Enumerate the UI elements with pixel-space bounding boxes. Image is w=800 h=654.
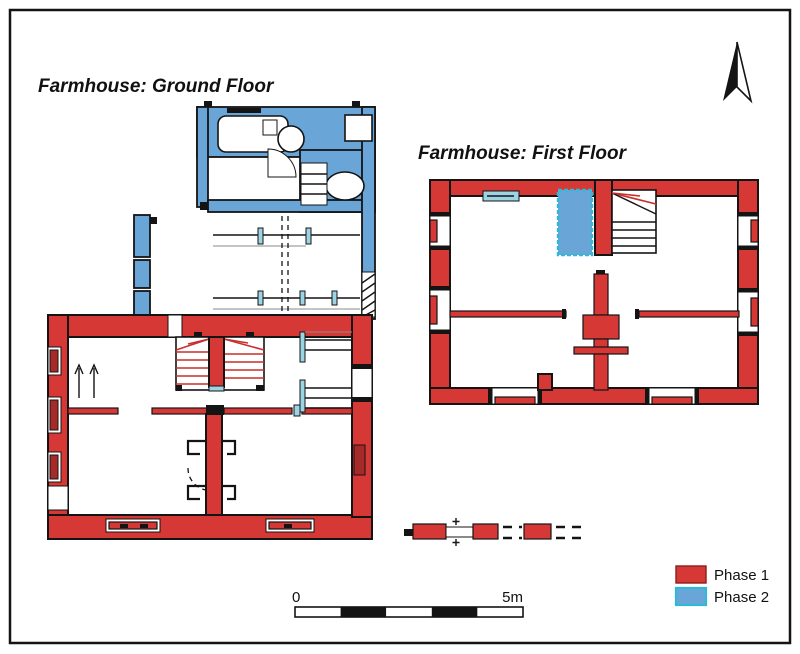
cistern [263,120,277,135]
scale-bar-segment [386,607,432,617]
wash-basin [278,126,304,152]
scale-bar-segment [477,607,523,617]
scale-bar-segments [295,607,523,617]
legend-label-phase2: Phase 2 [714,589,769,606]
scale-bar-segment [295,607,341,617]
ground-floor-stairs [176,337,264,391]
legend-label-phase1: Phase 1 [714,567,769,584]
legend-swatch-phase2 [676,588,706,605]
scale-end-label: 5m [502,589,523,606]
first-floor-stairs [612,190,656,253]
scale-start-label: 0 [292,589,300,606]
phase2-window-fitting [483,191,519,201]
hatched-wall-section [362,272,375,317]
figure-page: Farmhouse: Ground Floor Farmhouse: First… [0,0,800,654]
legend-swatch-phase1 [676,566,706,583]
floor-plan-figure: Farmhouse: Ground Floor Farmhouse: First… [0,0,800,654]
ground-floor-title: Farmhouse: Ground Floor [38,76,275,97]
toilet [326,172,364,200]
scale-bar-segment [432,607,478,617]
first-floor-title: Farmhouse: First Floor [418,143,628,164]
phase2-bathroom [558,190,592,255]
rear-steps [301,163,327,205]
scale-bar-segment [341,607,387,617]
